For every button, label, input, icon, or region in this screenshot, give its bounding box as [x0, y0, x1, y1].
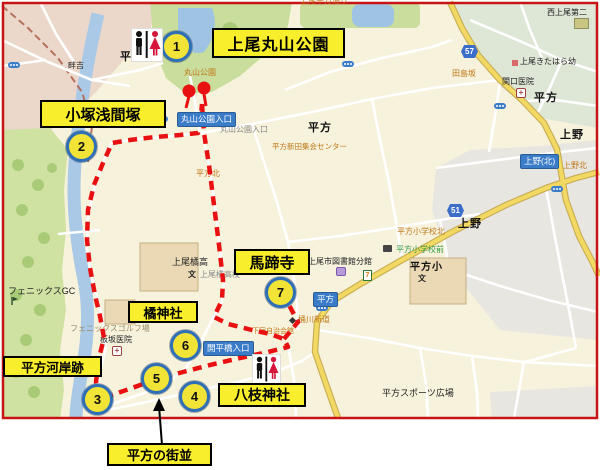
poi-label-hirakata-kashiato: 平方河岸跡	[3, 356, 102, 377]
poi-label-kozuka-sengenzuka: 小塚浅間塚	[40, 100, 166, 128]
restroom-icon	[252, 354, 281, 385]
annotation-layer: 1 2 3 4 5 6 7 上尾丸山公園 小塚浅間塚 馬蹄寺 橘神社 平方河岸跡…	[0, 0, 600, 470]
pointer-arrow	[148, 398, 172, 446]
restroom-icon	[131, 28, 163, 62]
poi-label-tachibana-jinja: 橘神社	[128, 301, 198, 323]
poi-label-bateiji: 馬蹄寺	[234, 249, 310, 275]
bus-label-hirakata: 平方	[313, 292, 338, 307]
route-shield-57: 57	[461, 45, 478, 58]
route-shield-51: 51	[447, 204, 464, 217]
poi-label-hirakata-machinami: 平方の街並	[107, 443, 212, 466]
bus-label-ueno-kita: 上野(北)	[520, 154, 559, 169]
route-stop-5: 5	[141, 363, 172, 394]
course-map: 上尾平方通り 畔吉 平方 丸山公園 丸山公園入口 平方 平方 上野 上野北 上野…	[0, 0, 600, 470]
route-stop-7: 7	[265, 277, 296, 308]
route-stop-4: 4	[179, 381, 210, 412]
route-stop-6: 6	[170, 330, 201, 361]
route-stop-3: 3	[82, 384, 113, 415]
bus-label-kaiheibashi: 開平橋入口	[203, 341, 254, 356]
bus-label-maruyama-entrance: 丸山公園入口	[177, 112, 236, 127]
route-stop-2: 2	[66, 131, 97, 162]
poi-label-maruyama-park: 上尾丸山公園	[212, 28, 345, 58]
route-stop-1: 1	[161, 31, 192, 62]
poi-label-yaeda-jinja: 八枝神社	[218, 383, 306, 407]
